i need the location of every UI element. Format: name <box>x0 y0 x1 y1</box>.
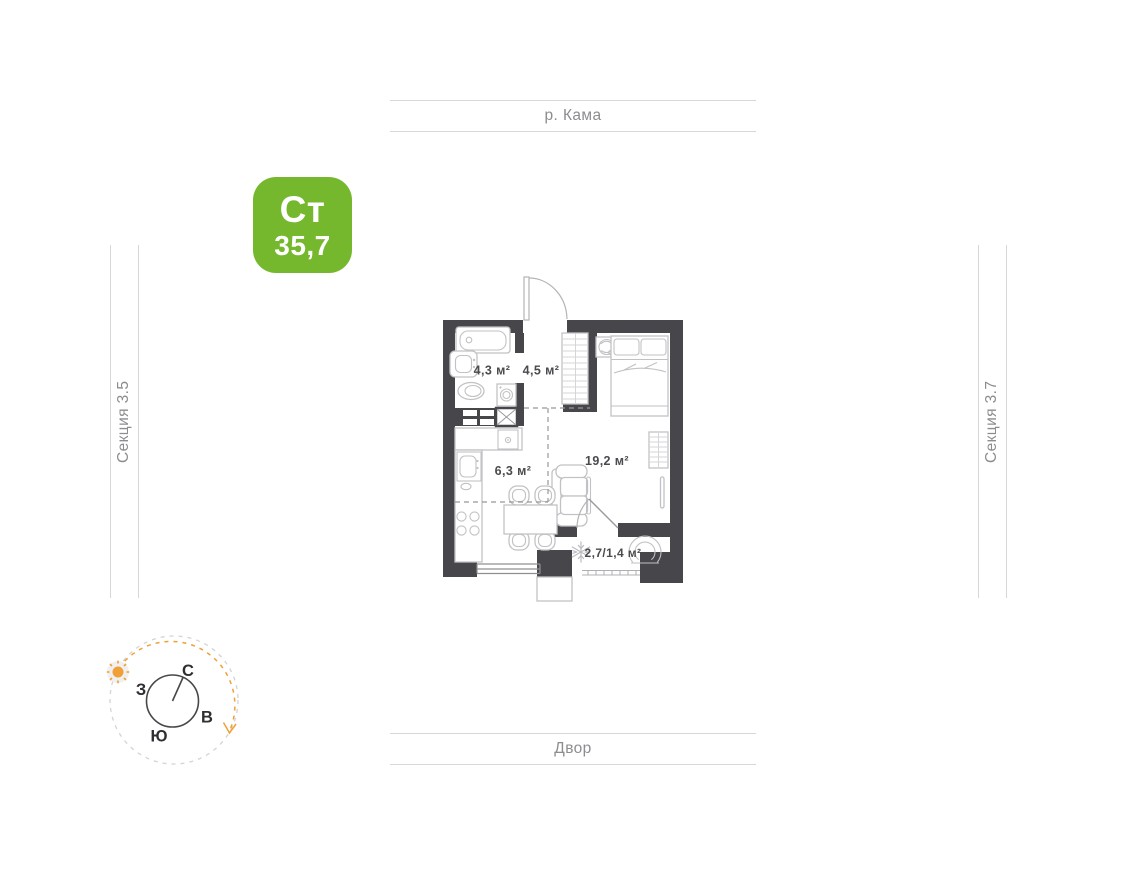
compass-south: Ю <box>150 728 167 746</box>
apartment-type-badge: Ст 35,7 <box>253 177 352 273</box>
bed <box>611 336 668 416</box>
bathtub <box>456 327 510 353</box>
room-area-label-living: 19,2 м² <box>585 454 629 468</box>
left-section-label: Секция 3.5 <box>110 245 138 598</box>
bottom-context-line-2 <box>390 764 756 765</box>
mirror <box>661 477 665 508</box>
yard-label: Двор <box>554 740 591 758</box>
wardrobe <box>562 333 588 404</box>
balcony-railing <box>582 571 640 576</box>
sun-icon <box>107 661 129 683</box>
washing-machine <box>497 384 516 406</box>
compass-north: С <box>182 662 194 680</box>
right-context-line-2 <box>1006 245 1007 598</box>
room-area-label-kitchen: 6,3 м² <box>495 464 532 478</box>
bottom-context-label: Двор <box>390 736 756 762</box>
sun-path-arrow <box>224 723 237 734</box>
sofa <box>552 465 591 526</box>
compass: С З В Ю <box>95 625 260 780</box>
bottom-context-line-1 <box>390 733 756 734</box>
top-context-label: р. Кама <box>390 103 756 129</box>
right-section-label: Секция 3.7 <box>978 245 1006 598</box>
kitchen-window <box>477 564 540 574</box>
room-area-label-bathroom: 4,3 м² <box>474 364 511 378</box>
floor-plan: 4,3 м² 4,5 м² 6,3 м² 19,2 м² 2,7/1,4 м² <box>435 270 690 605</box>
toilet <box>458 383 484 400</box>
left-context-line-2 <box>138 245 139 598</box>
apartment-area: 35,7 <box>274 232 331 260</box>
room-area-label-hallway: 4,5 м² <box>523 364 560 378</box>
compass-west: З <box>136 681 146 699</box>
dresser <box>649 432 668 468</box>
floorplan-page: р. Кама Двор Секция 3.5 Секция 3.7 Ст 35… <box>0 0 1121 880</box>
room-area-label-balcony: 2,7/1,4 м² <box>585 546 642 560</box>
entry-door <box>524 277 567 320</box>
river-label: р. Кама <box>545 107 602 125</box>
top-context-line-2 <box>390 131 756 132</box>
top-context-line-1 <box>390 100 756 101</box>
apartment-type: Ст <box>280 191 326 228</box>
dining-table <box>504 505 557 534</box>
compass-east: В <box>201 709 213 727</box>
pillar <box>537 577 572 601</box>
